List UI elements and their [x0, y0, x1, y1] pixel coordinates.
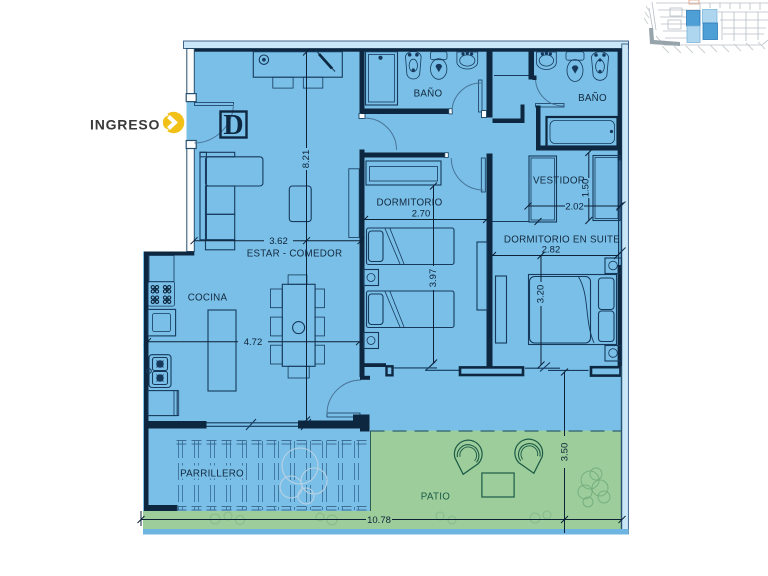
svg-text:BAÑO: BAÑO [414, 89, 443, 100]
svg-text:3.62: 3.62 [269, 236, 288, 247]
svg-text:BAÑO: BAÑO [578, 93, 607, 104]
svg-text:2.02: 2.02 [565, 202, 584, 213]
svg-text:D: D [223, 110, 243, 141]
svg-text:DORMITORIO: DORMITORIO [377, 198, 443, 209]
svg-text:8.21: 8.21 [301, 150, 312, 169]
svg-text:ESTAR - COMEDOR: ESTAR - COMEDOR [247, 249, 343, 260]
svg-text:10.78: 10.78 [367, 515, 391, 526]
svg-text:4.72: 4.72 [244, 337, 263, 348]
svg-text:3.50: 3.50 [560, 443, 571, 462]
svg-text:3.97: 3.97 [428, 269, 439, 288]
svg-text:3.20: 3.20 [536, 285, 547, 304]
svg-text:DORMITORIO EN SUITE: DORMITORIO EN SUITE [504, 235, 620, 246]
svg-text:2.70: 2.70 [412, 209, 431, 220]
svg-text:2.82: 2.82 [542, 245, 561, 256]
svg-text:INGRESO: INGRESO [90, 117, 160, 133]
svg-text:PATIO: PATIO [421, 492, 451, 503]
svg-text:PARRILLERO: PARRILLERO [180, 469, 244, 480]
svg-text:VESTIDOR: VESTIDOR [533, 176, 585, 187]
svg-text:COCINA: COCINA [188, 293, 228, 304]
